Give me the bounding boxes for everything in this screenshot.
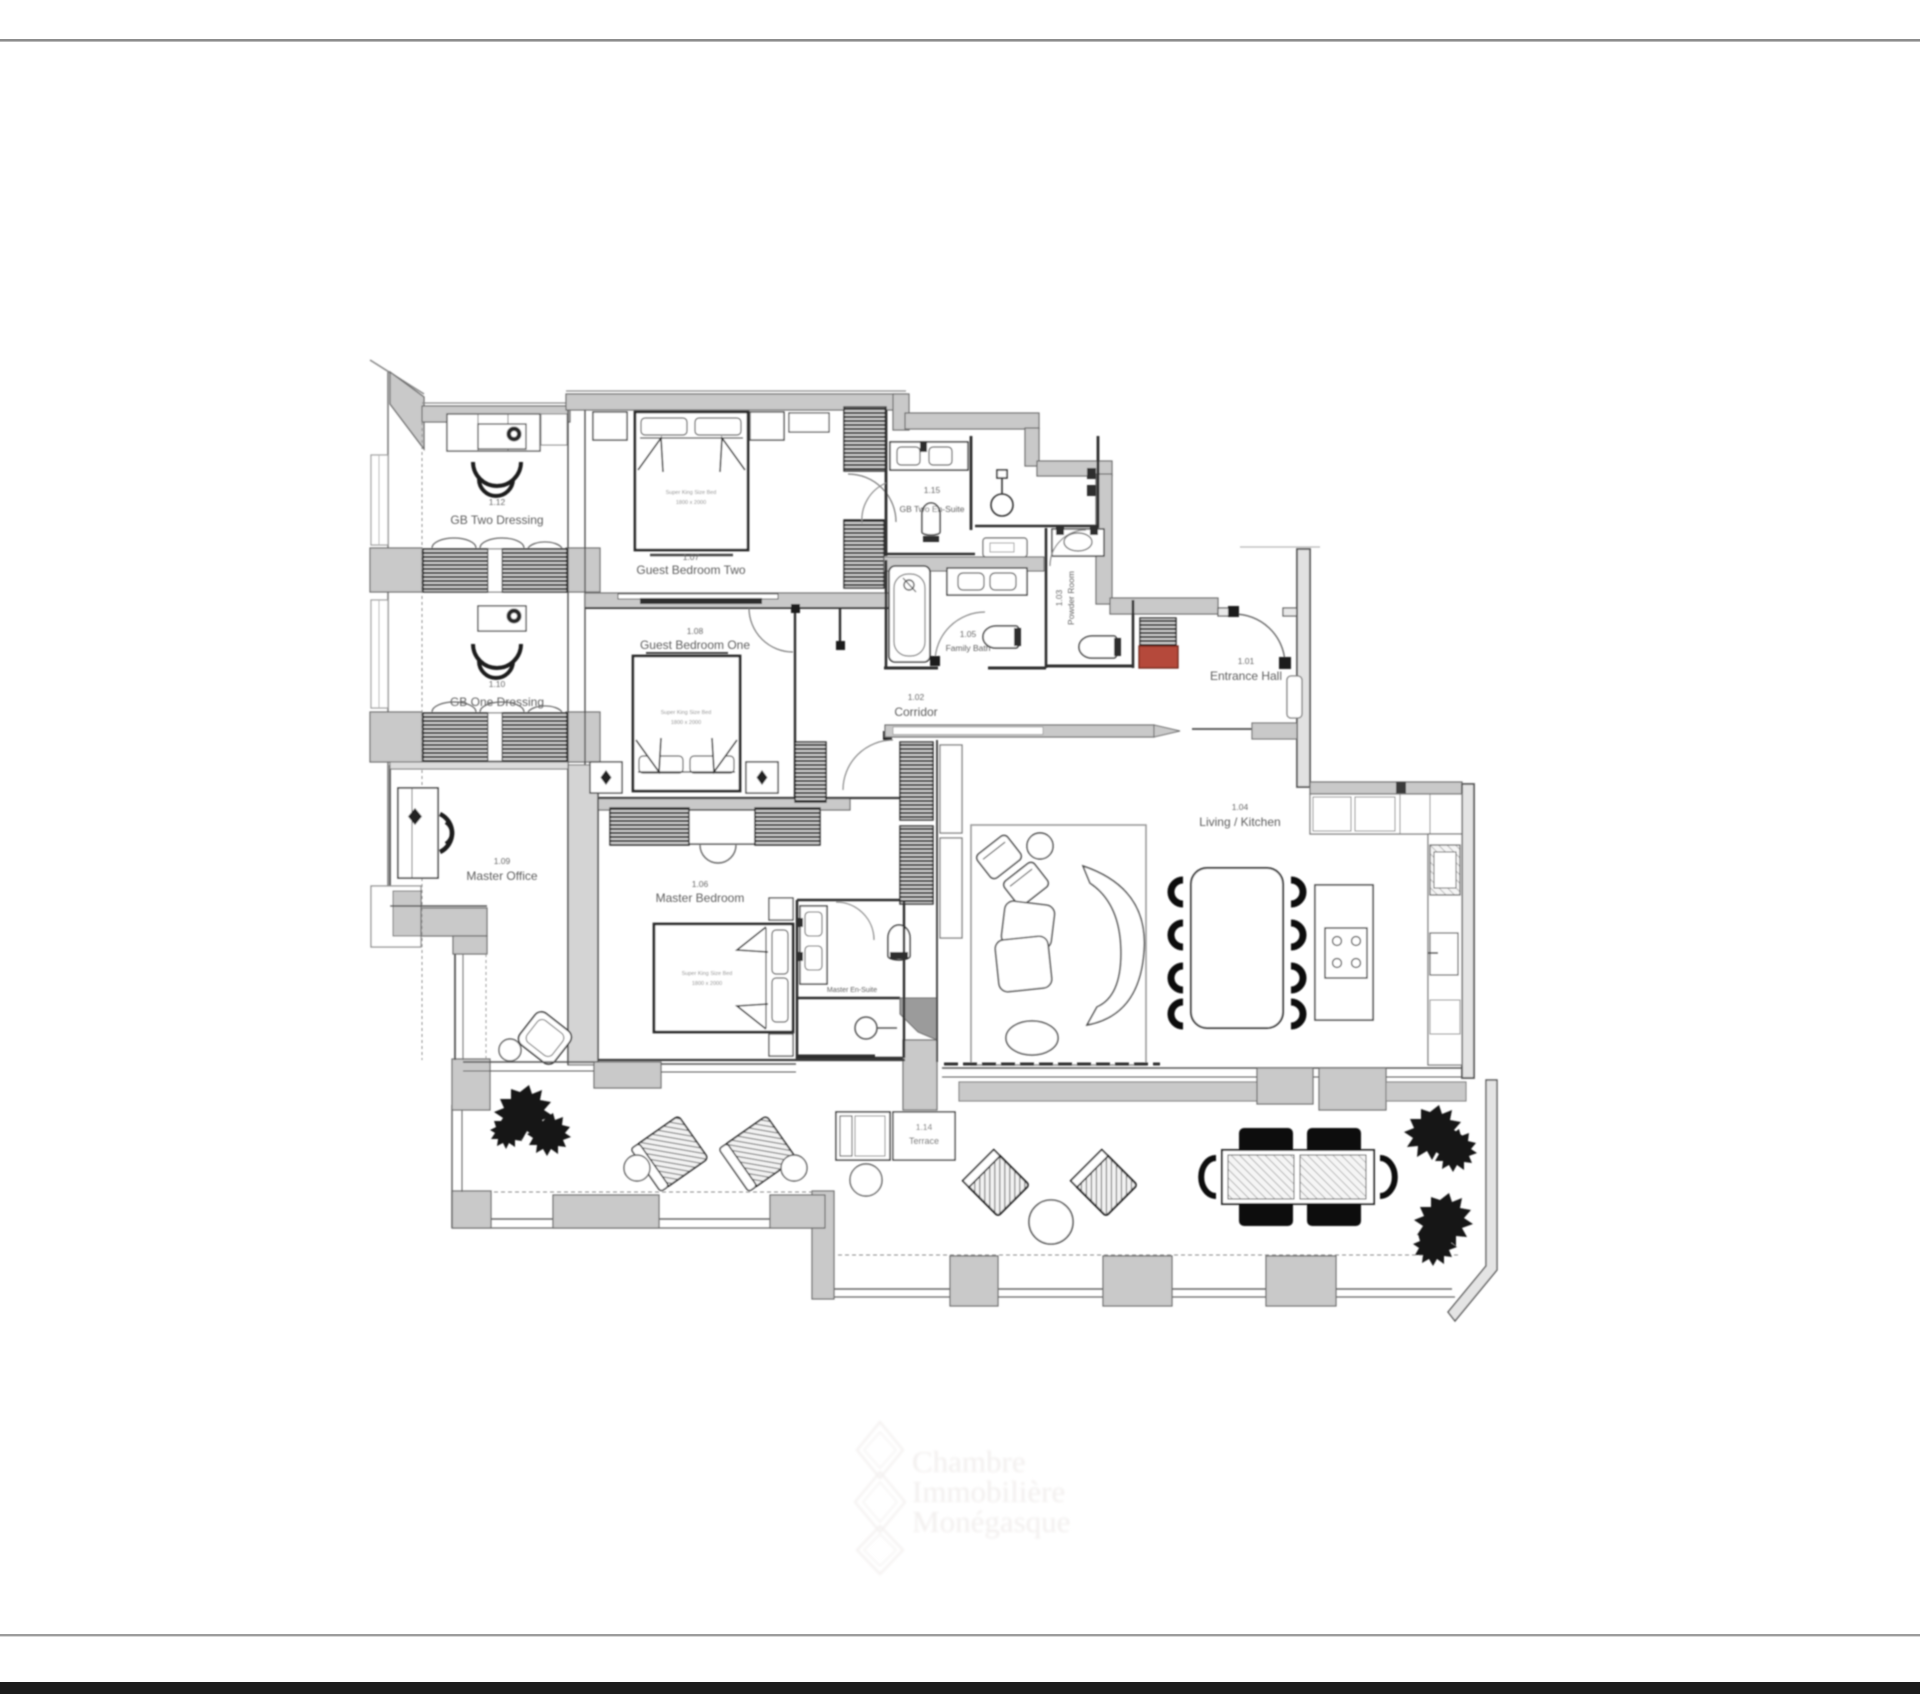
svg-text:1.02: 1.02 [908,692,925,702]
svg-text:Living / Kitchen: Living / Kitchen [1199,815,1280,829]
svg-text:1800 x 2000: 1800 x 2000 [676,500,706,506]
svg-text:Terrace: Terrace [909,1136,939,1146]
svg-text:Powder Room: Powder Room [1066,571,1076,625]
svg-text:Entrance Hall: Entrance Hall [1210,669,1282,683]
svg-text:GB Two Dressing: GB Two Dressing [450,513,543,527]
svg-text:Super King Size Bed: Super King Size Bed [666,490,717,496]
svg-text:1.04: 1.04 [1232,802,1249,812]
svg-text:Master Bedroom: Master Bedroom [656,891,745,905]
svg-text:1.07: 1.07 [683,552,700,562]
svg-text:Family Bath: Family Bath [946,643,991,653]
svg-text:Corridor: Corridor [894,705,937,719]
svg-text:Guest Bedroom One: Guest Bedroom One [640,638,750,652]
svg-text:1800 x 2000: 1800 x 2000 [671,720,701,726]
svg-text:GB Two En-Suite: GB Two En-Suite [899,504,964,514]
svg-text:1.09: 1.09 [494,856,511,866]
svg-text:1.14: 1.14 [916,1122,933,1132]
svg-text:Monégasque: Monégasque [912,1504,1070,1539]
svg-text:Guest Bedroom Two: Guest Bedroom Two [636,563,745,577]
svg-text:Master Office: Master Office [466,869,537,883]
svg-text:1.03: 1.03 [1054,589,1064,606]
svg-text:1.08: 1.08 [687,626,704,636]
svg-text:1.15: 1.15 [924,485,941,495]
svg-text:1.01: 1.01 [1238,656,1255,666]
svg-text:Master En-Suite: Master En-Suite [827,987,877,994]
svg-text:1800 x 2000: 1800 x 2000 [692,981,722,987]
svg-text:1.10: 1.10 [489,679,506,689]
svg-text:Super King Size Bed: Super King Size Bed [661,710,712,716]
svg-text:1.05: 1.05 [960,629,977,639]
svg-text:1.06: 1.06 [692,879,709,889]
svg-text:Super King Size Bed: Super King Size Bed [682,971,733,977]
svg-text:1.12: 1.12 [489,497,506,507]
